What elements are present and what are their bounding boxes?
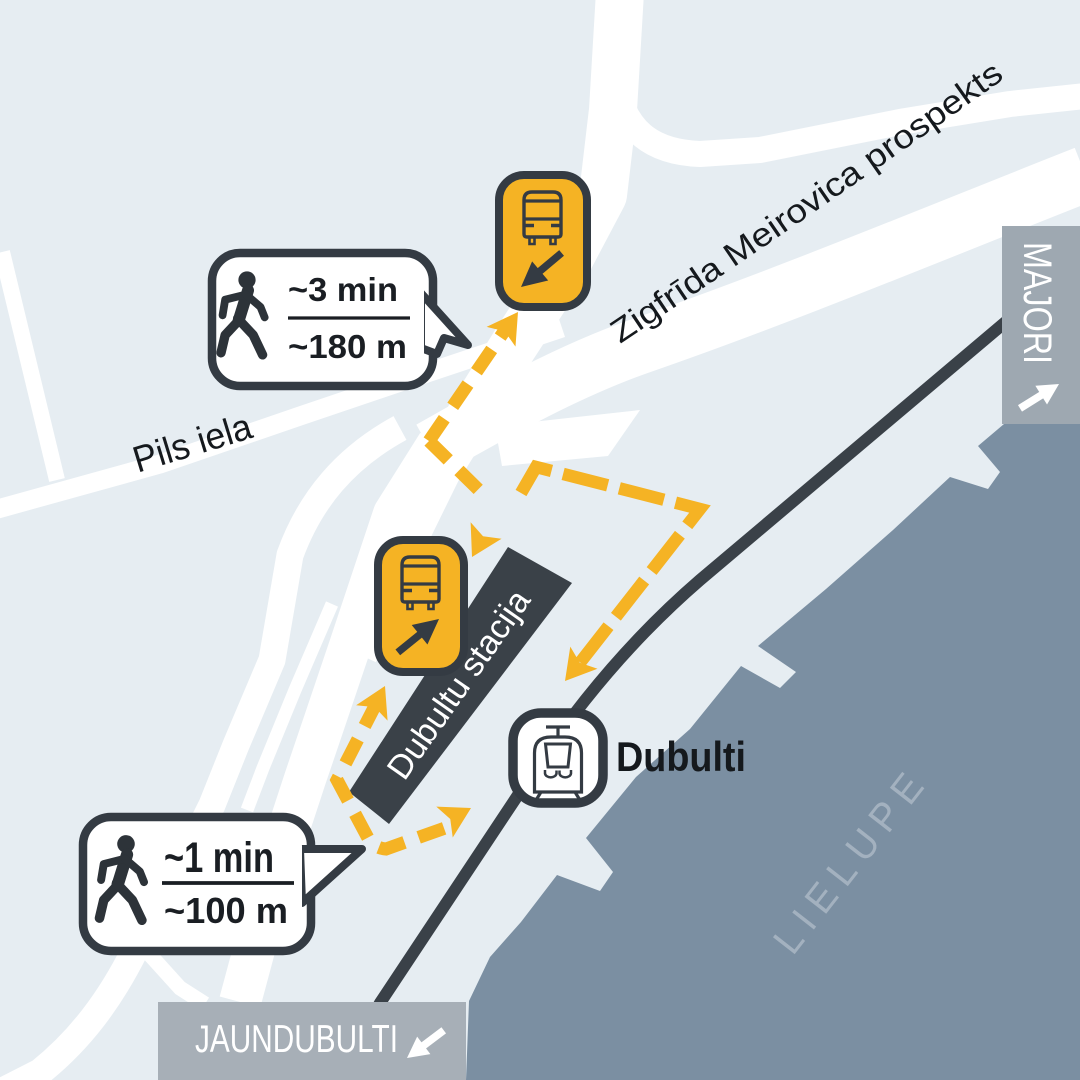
svg-text:~180 m: ~180 m xyxy=(288,328,407,365)
svg-text:MAJORI: MAJORI xyxy=(1015,242,1059,364)
svg-text:~3 min: ~3 min xyxy=(288,271,398,308)
svg-text:JAUNDUBULTI: JAUNDUBULTI xyxy=(195,1018,398,1061)
svg-text:~100 m: ~100 m xyxy=(164,890,288,931)
svg-text:Dubulti: Dubulti xyxy=(616,733,746,780)
svg-text:~1 min: ~1 min xyxy=(164,834,274,882)
